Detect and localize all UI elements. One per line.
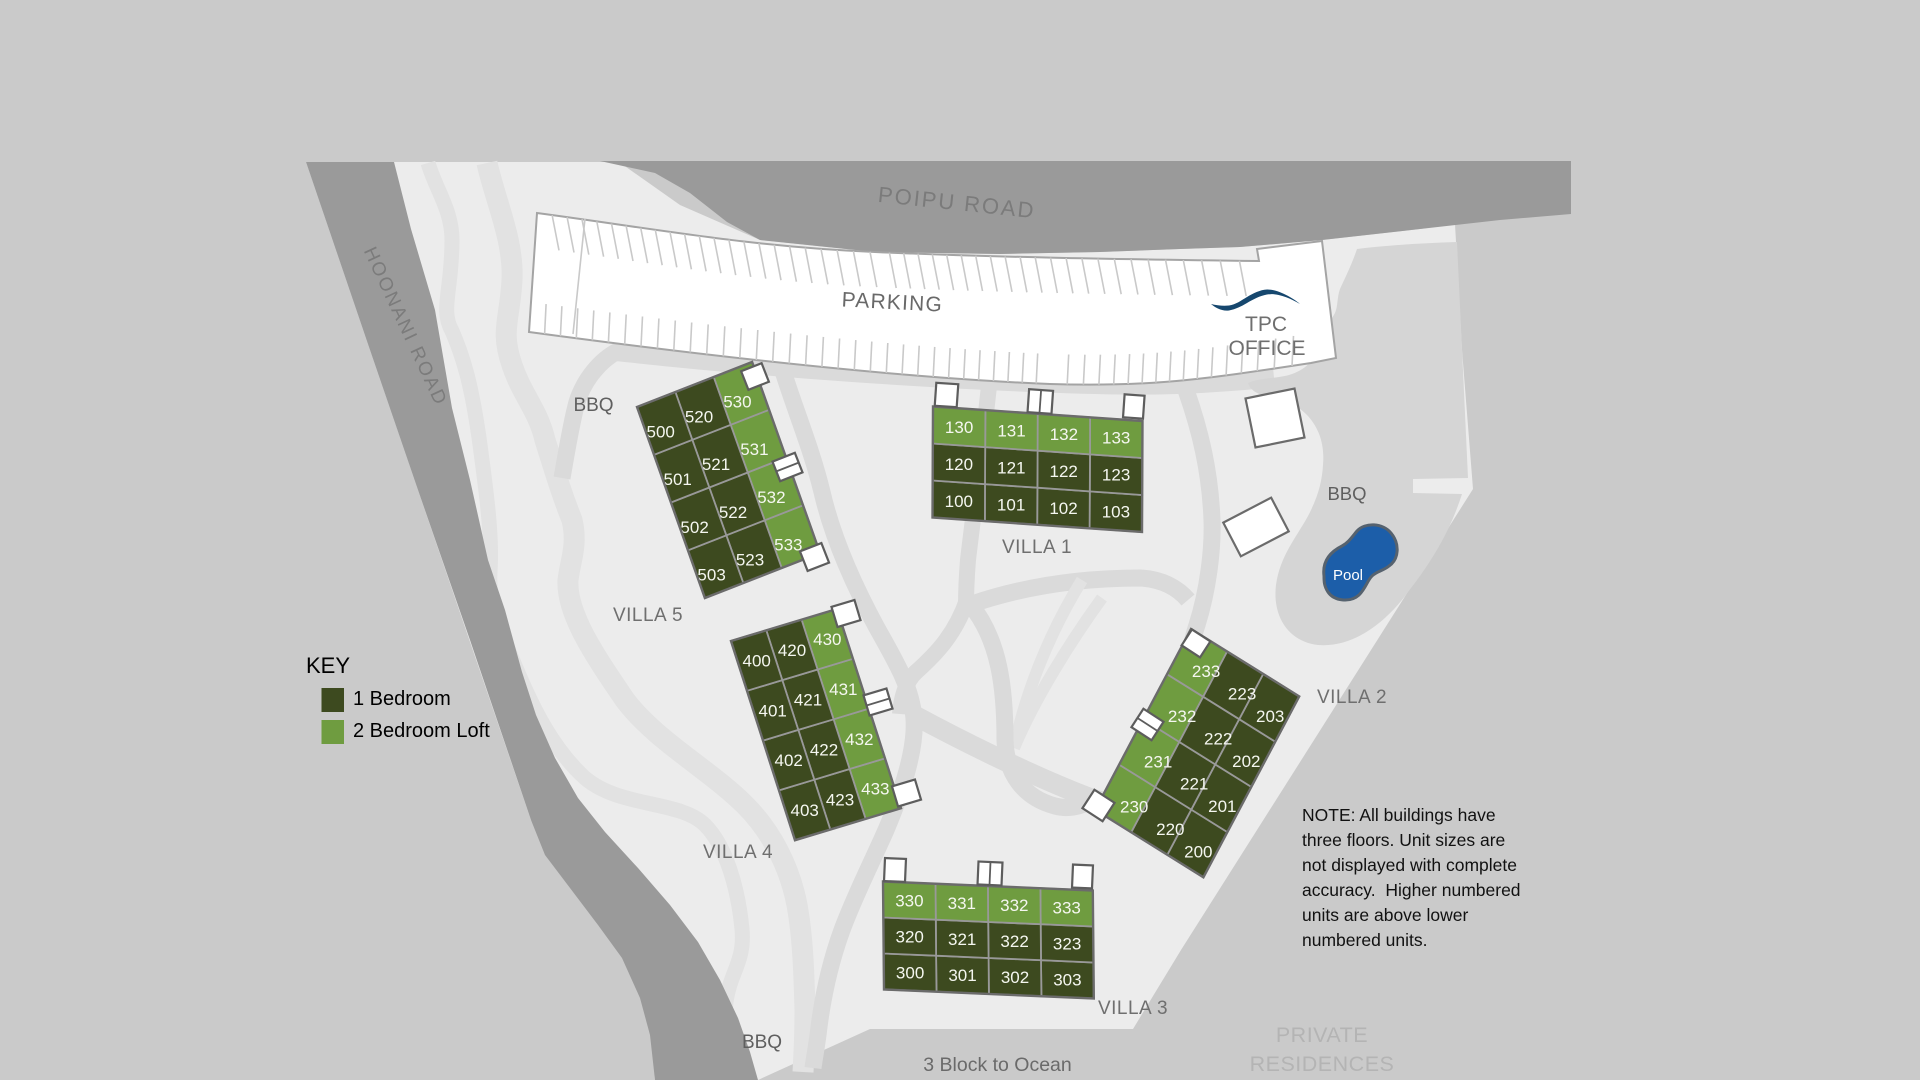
- svg-text:not displayed with complete: not displayed with complete: [1302, 855, 1517, 875]
- svg-text:223: 223: [1228, 684, 1256, 703]
- svg-text:BBQ: BBQ: [573, 395, 613, 416]
- svg-text:333: 333: [1053, 898, 1081, 917]
- svg-text:532: 532: [757, 488, 785, 507]
- svg-text:units are above lower: units are above lower: [1302, 905, 1469, 925]
- svg-text:VILLA 3: VILLA 3: [1098, 998, 1168, 1019]
- svg-text:421: 421: [794, 691, 822, 710]
- svg-text:420: 420: [778, 641, 806, 660]
- svg-text:401: 401: [759, 701, 787, 720]
- svg-text:400: 400: [743, 652, 771, 671]
- svg-text:520: 520: [685, 407, 713, 426]
- svg-text:230: 230: [1120, 798, 1148, 817]
- svg-text:531: 531: [740, 440, 768, 459]
- svg-text:222: 222: [1204, 730, 1232, 749]
- svg-text:232: 232: [1168, 707, 1196, 726]
- svg-text:201: 201: [1208, 797, 1236, 816]
- svg-text:121: 121: [997, 458, 1025, 477]
- svg-text:200: 200: [1184, 842, 1212, 861]
- svg-text:VILLA 4: VILLA 4: [703, 842, 773, 863]
- svg-text:numbered units.: numbered units.: [1302, 930, 1428, 950]
- svg-text:122: 122: [1050, 462, 1078, 481]
- svg-text:BBQ: BBQ: [742, 1032, 782, 1053]
- svg-text:302: 302: [1001, 968, 1029, 987]
- svg-text:430: 430: [813, 630, 841, 649]
- svg-text:VILLA 5: VILLA 5: [613, 605, 683, 626]
- svg-text:130: 130: [945, 418, 973, 437]
- svg-text:501: 501: [664, 470, 692, 489]
- svg-text:220: 220: [1156, 820, 1184, 839]
- svg-text:423: 423: [826, 790, 854, 809]
- svg-text:422: 422: [810, 741, 838, 760]
- svg-text:500: 500: [647, 422, 675, 441]
- svg-text:102: 102: [1049, 499, 1077, 518]
- svg-text:502: 502: [680, 518, 708, 537]
- svg-text:233: 233: [1192, 662, 1220, 681]
- svg-text:303: 303: [1053, 970, 1081, 989]
- svg-text:331: 331: [948, 894, 976, 913]
- svg-text:320: 320: [896, 928, 924, 947]
- svg-text:120: 120: [945, 455, 973, 474]
- svg-text:231: 231: [1144, 752, 1172, 771]
- svg-text:522: 522: [719, 503, 747, 522]
- svg-text:VILLA 2: VILLA 2: [1317, 687, 1387, 708]
- svg-text:BBQ: BBQ: [1327, 483, 1366, 504]
- svg-text:323: 323: [1053, 934, 1081, 953]
- svg-text:100: 100: [945, 492, 973, 511]
- svg-text:RESIDENCES: RESIDENCES: [1250, 1052, 1395, 1076]
- svg-text:431: 431: [829, 680, 857, 699]
- svg-text:133: 133: [1102, 429, 1130, 448]
- svg-text:KEY: KEY: [306, 653, 350, 678]
- svg-text:301: 301: [948, 966, 976, 985]
- svg-text:103: 103: [1102, 503, 1130, 522]
- svg-text:332: 332: [1000, 896, 1028, 915]
- svg-text:503: 503: [697, 566, 725, 585]
- svg-text:300: 300: [896, 964, 924, 983]
- svg-text:132: 132: [1050, 425, 1078, 444]
- svg-text:521: 521: [702, 455, 730, 474]
- svg-text:TPC: TPC: [1245, 313, 1287, 336]
- svg-text:523: 523: [736, 551, 764, 570]
- svg-text:433: 433: [861, 780, 889, 799]
- svg-text:322: 322: [1000, 932, 1028, 951]
- svg-text:403: 403: [791, 801, 819, 820]
- svg-text:OFFICE: OFFICE: [1229, 337, 1306, 360]
- svg-text:1 Bedroom: 1 Bedroom: [353, 688, 451, 710]
- svg-text:330: 330: [895, 892, 923, 911]
- svg-text:203: 203: [1256, 707, 1284, 726]
- svg-text:accuracy. Higher numbered: accuracy. Higher numbered: [1302, 880, 1521, 900]
- svg-text:321: 321: [948, 930, 976, 949]
- svg-text:402: 402: [775, 751, 803, 770]
- svg-text:202: 202: [1232, 752, 1260, 771]
- svg-text:PRIVATE: PRIVATE: [1276, 1023, 1368, 1047]
- svg-text:2 Bedroom Loft: 2 Bedroom Loft: [353, 720, 490, 742]
- svg-text:VILLA 1: VILLA 1: [1002, 537, 1072, 558]
- svg-text:530: 530: [723, 392, 751, 411]
- svg-text:533: 533: [774, 536, 802, 555]
- svg-text:432: 432: [845, 730, 873, 749]
- svg-text:221: 221: [1180, 775, 1208, 794]
- svg-text:123: 123: [1102, 466, 1130, 485]
- svg-text:3 Block to Ocean: 3 Block to Ocean: [923, 1054, 1072, 1076]
- svg-text:NOTE: All buildings have: NOTE: All buildings have: [1302, 805, 1496, 825]
- svg-text:101: 101: [997, 495, 1025, 514]
- svg-text:three floors. Unit sizes are: three floors. Unit sizes are: [1302, 830, 1505, 850]
- svg-text:Pool: Pool: [1333, 567, 1363, 584]
- svg-text:131: 131: [997, 421, 1025, 440]
